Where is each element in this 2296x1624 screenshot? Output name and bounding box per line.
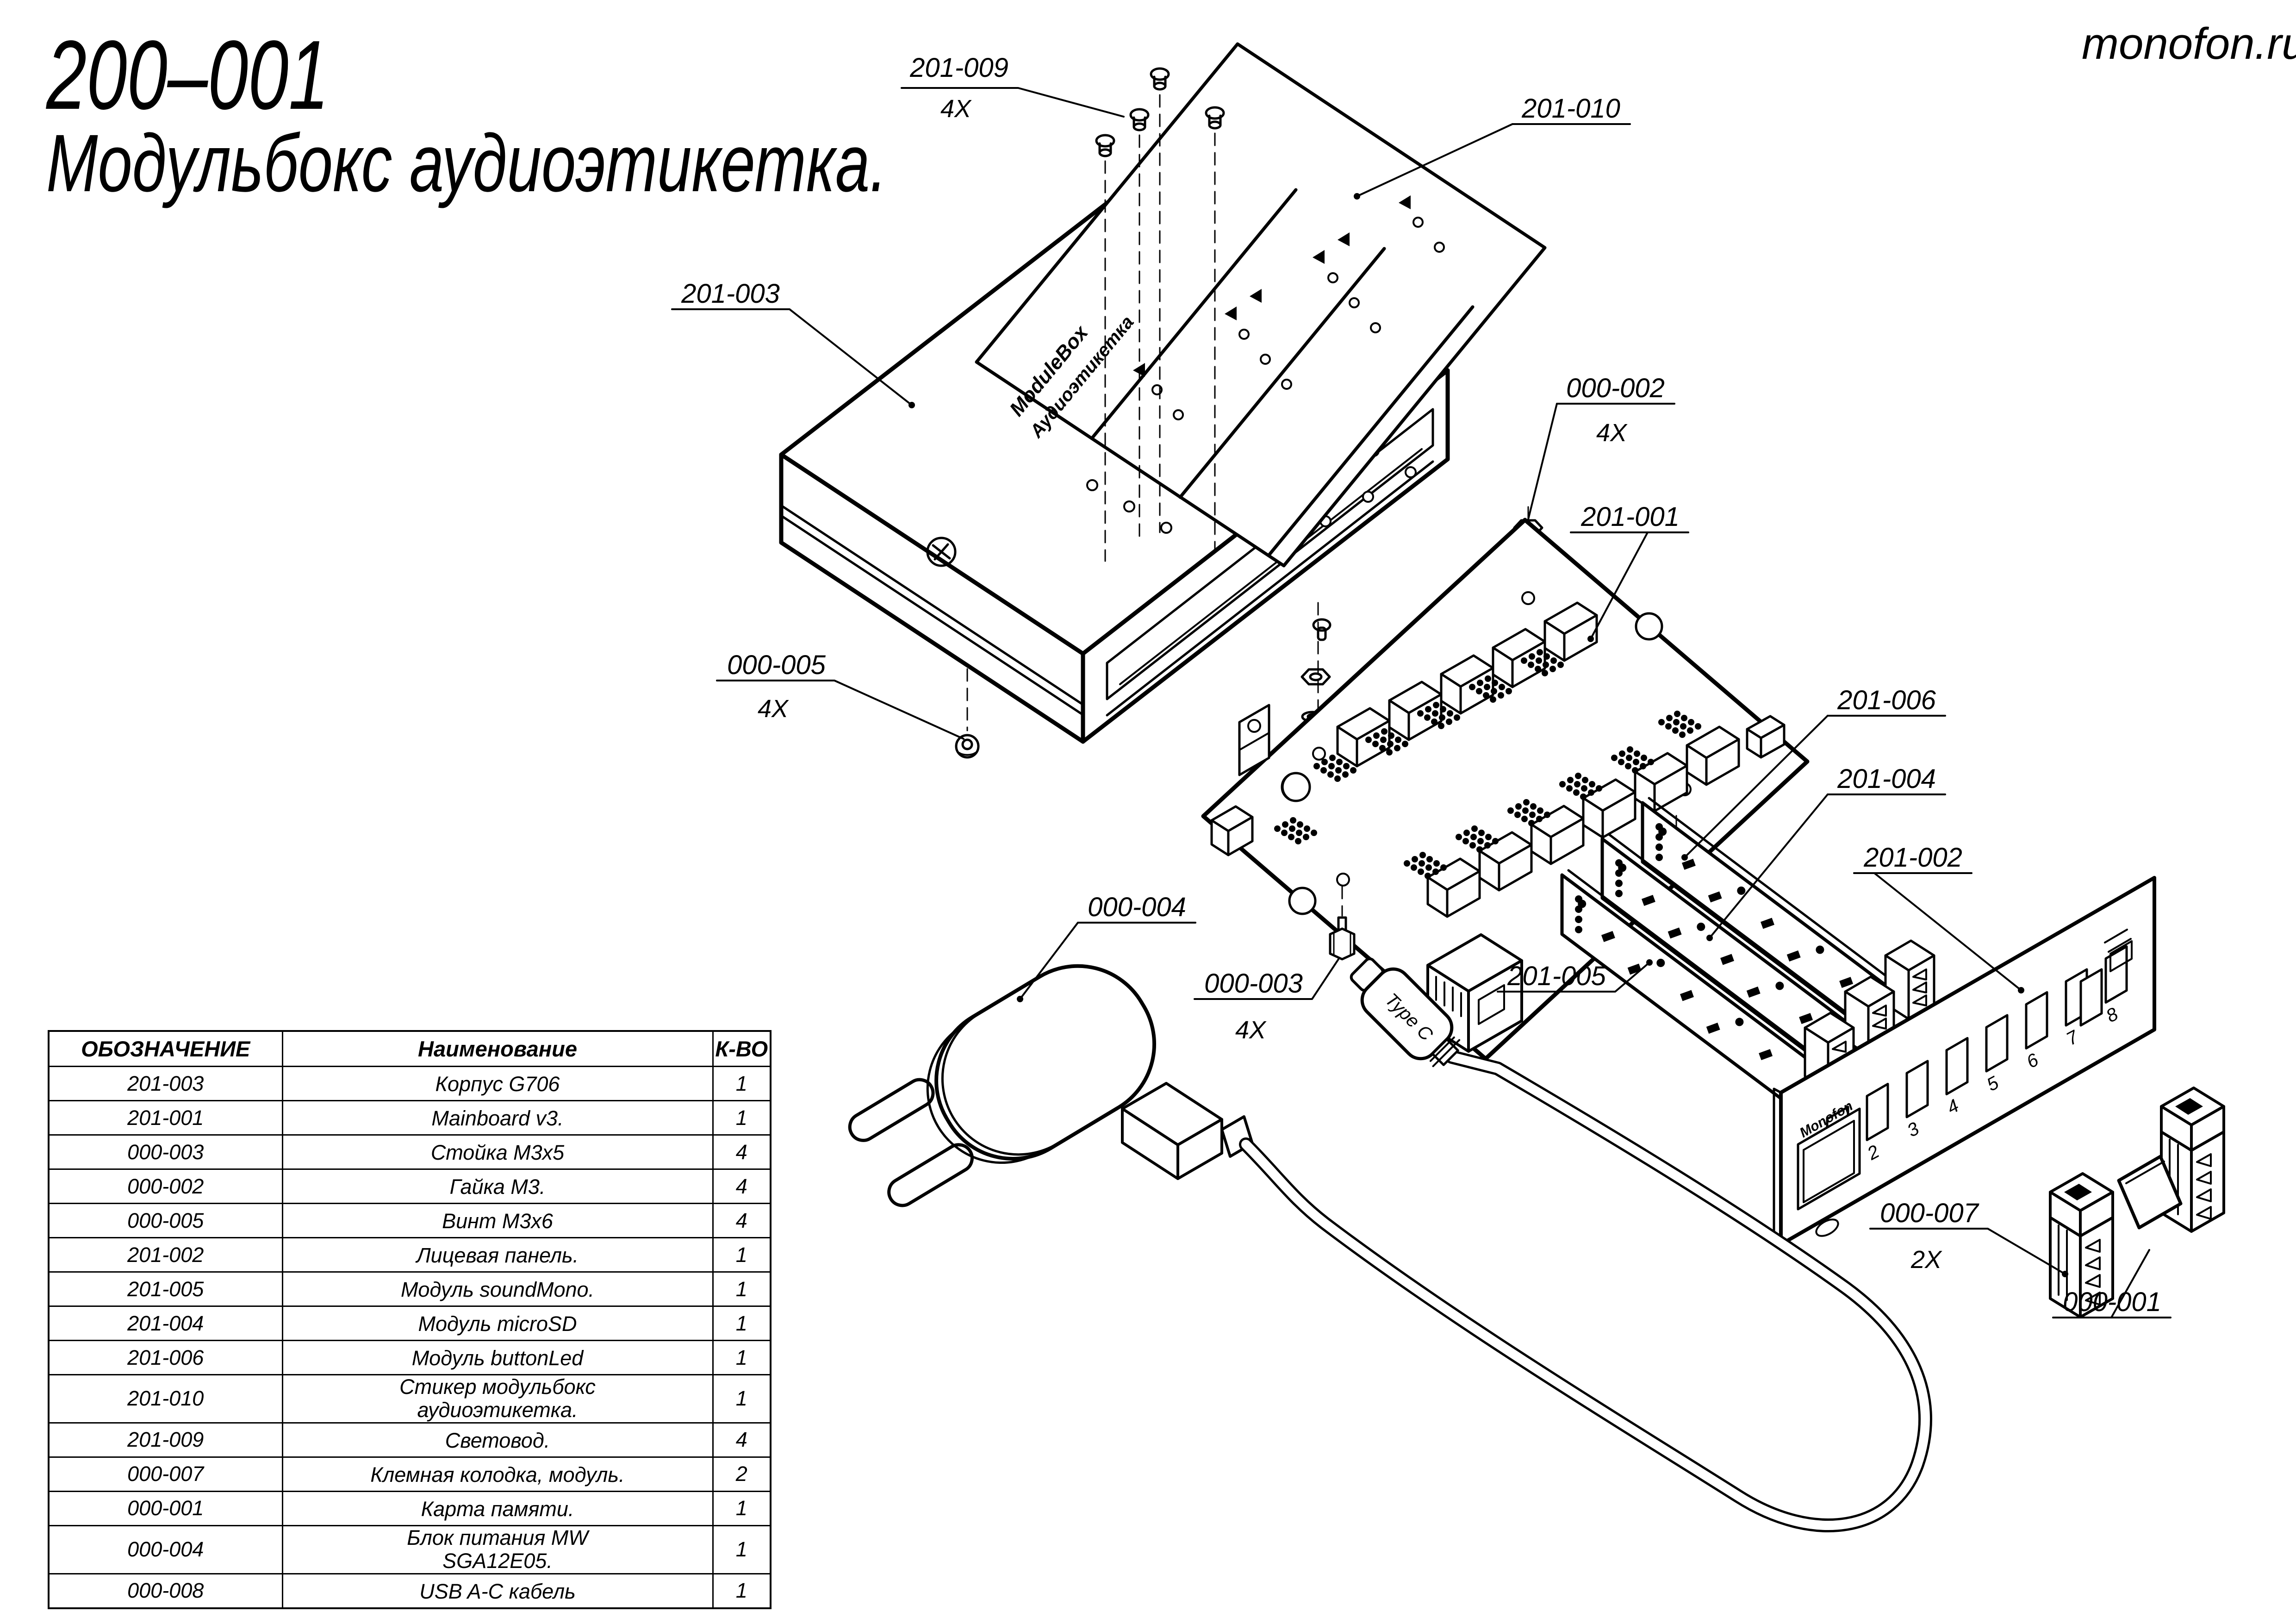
- bom-row: 201-009Световод.4: [49, 1423, 771, 1457]
- callout-000-004: 000-004: [1076, 894, 1198, 921]
- callout-000-003-qty: 4X: [1213, 1018, 1288, 1043]
- callout-000-007-qty: 2X: [1889, 1247, 1963, 1272]
- callout-201-001: 201-001: [1569, 504, 1692, 531]
- bom-row: 201-004Модуль microSD1: [49, 1306, 771, 1341]
- bom-cell-qty: 4: [713, 1135, 771, 1169]
- bom-cell-name: Корпус G706: [282, 1067, 713, 1101]
- bom-cell-designation: 201-001: [49, 1101, 282, 1135]
- callout-000-002: 000-002: [1554, 375, 1677, 402]
- bom-cell-qty: 1: [713, 1306, 771, 1341]
- bom-cell-qty: 4: [713, 1169, 771, 1204]
- bom-cell-qty: 1: [713, 1238, 771, 1272]
- bill-of-materials: ОБОЗНАЧЕНИЕ Наименование К-ВО 201-003Кор…: [48, 1030, 772, 1609]
- bom-cell-name: Гайка М3.: [282, 1169, 713, 1204]
- callout-000-007: 000-007: [1868, 1200, 1991, 1227]
- bom-cell-designation: 201-005: [49, 1272, 282, 1306]
- bom-cell-name: Модуль soundMono.: [282, 1272, 713, 1306]
- bom-cell-designation: 201-003: [49, 1067, 282, 1101]
- light-pipe: [1151, 69, 1169, 89]
- bom-cell-name: Лицевая панель.: [282, 1238, 713, 1272]
- power-adapter: [832, 938, 1182, 1232]
- callout-000-003: 000-003: [1192, 970, 1315, 997]
- bom-row: 000-005Винт М3х64: [49, 1204, 771, 1238]
- drawing-title: Модульбокс аудиоэтикетка.: [46, 117, 887, 210]
- callout-000-005-qty: 4X: [736, 696, 810, 721]
- bom-cell-designation: 000-005: [49, 1204, 282, 1238]
- callout-201-010: 201-010: [1510, 95, 1632, 122]
- light-pipe: [1096, 135, 1114, 156]
- bom-cell-qty: 1: [713, 1272, 771, 1306]
- bom-row: 201-002Лицевая панель.1: [49, 1238, 771, 1272]
- bom-cell-designation: 000-008: [49, 1574, 282, 1608]
- bom-cell-name: Карта памяти.: [282, 1491, 713, 1525]
- bom-cell-qty: 4: [713, 1423, 771, 1457]
- bom-cell-name: USB A-C кабель: [282, 1574, 713, 1608]
- drawing-number: 200–001: [46, 19, 329, 131]
- bom-cell-designation: 000-002: [49, 1169, 282, 1204]
- callout-201-002: 201-002: [1852, 844, 1974, 871]
- bom-cell-qty: 1: [713, 1525, 771, 1574]
- bom-row: 000-003Стойка М3х54: [49, 1135, 771, 1169]
- callout-000-002-qty: 4X: [1574, 420, 1649, 445]
- bom-header-name: Наименование: [282, 1031, 713, 1067]
- bom-header-qty: К-ВО: [713, 1031, 771, 1067]
- callout-000-001: 000-001: [2051, 1289, 2173, 1316]
- bom-cell-name: Световод.: [282, 1423, 713, 1457]
- bom-cell-name: Стойка М3х5: [282, 1135, 713, 1169]
- bom-row: 000-004Блок питания MW SGA12E05.1: [49, 1525, 771, 1574]
- bom-header-row: ОБОЗНАЧЕНИЕ Наименование К-ВО: [49, 1031, 771, 1067]
- bom-cell-qty: 1: [713, 1101, 771, 1135]
- callout-201-006: 201-006: [1825, 687, 1948, 714]
- bom-cell-qty: 1: [713, 1574, 771, 1608]
- callout-201-009: 201-009: [898, 55, 1020, 81]
- usb-a-plug: [1122, 1083, 1252, 1179]
- bom-cell-name: Mainboard v3.: [282, 1101, 713, 1135]
- bom-cell-name: Блок питания MW SGA12E05.: [282, 1525, 713, 1574]
- bom-row: 000-008USB A-C кабель1: [49, 1574, 771, 1608]
- bom-cell-designation: 000-007: [49, 1457, 282, 1491]
- bom-row: 201-006Модуль buttonLed1: [49, 1341, 771, 1375]
- bom-row: 000-007Клемная колодка, модуль.2: [49, 1457, 771, 1491]
- nut-m3: [1302, 669, 1330, 684]
- bom-header-designation: ОБОЗНАЧЕНИЕ: [49, 1031, 282, 1067]
- callout-000-005: 000-005: [715, 652, 838, 679]
- callout-201-004: 201-004: [1825, 766, 1948, 793]
- screw-m3x6: [1313, 619, 1330, 640]
- callout-201-003: 201-003: [669, 281, 792, 307]
- bom-cell-qty: 2: [713, 1457, 771, 1491]
- bom-cell-qty: 4: [713, 1204, 771, 1238]
- bom-cell-name: Стикер модульбокс аудиоэтикетка.: [282, 1375, 713, 1423]
- bom-cell-designation: 000-004: [49, 1525, 282, 1574]
- bom-row: 201-005Модуль soundMono.1: [49, 1272, 771, 1306]
- bom-cell-designation: 000-003: [49, 1135, 282, 1169]
- callout-201-009-qty: 4X: [919, 96, 993, 121]
- bom-row: 201-010Стикер модульбокс аудиоэтикетка.1: [49, 1375, 771, 1423]
- bom-cell-designation: 201-009: [49, 1423, 282, 1457]
- bom-cell-designation: 000-001: [49, 1491, 282, 1525]
- bom-cell-designation: 201-002: [49, 1238, 282, 1272]
- bom-row: 201-001Mainboard v3.1: [49, 1101, 771, 1135]
- bom-row: 000-001Карта памяти.1: [49, 1491, 771, 1525]
- callout-201-005: 201-005: [1495, 963, 1618, 990]
- bom-cell-qty: 1: [713, 1491, 771, 1525]
- bom-cell-qty: 1: [713, 1341, 771, 1375]
- drawing-sheet: { "colors": { "ink": "#000000", "paper":…: [0, 0, 2296, 1624]
- bom-cell-designation: 201-004: [49, 1306, 282, 1341]
- bom-cell-name: Модуль buttonLed: [282, 1341, 713, 1375]
- bom-cell-name: Винт М3х6: [282, 1204, 713, 1238]
- bom-cell-designation: 201-010: [49, 1375, 282, 1423]
- bom-cell-designation: 201-006: [49, 1341, 282, 1375]
- bom-cell-qty: 1: [713, 1067, 771, 1101]
- bom-cell-qty: 1: [713, 1375, 771, 1423]
- bom-row: 000-002Гайка М3.4: [49, 1169, 771, 1204]
- screw-m3x6: [956, 735, 978, 757]
- bom-cell-name: Клемная колодка, модуль.: [282, 1457, 713, 1491]
- watermark-logo: monofon.ru: [2082, 19, 2296, 69]
- bom-row: 201-003Корпус G7061: [49, 1067, 771, 1101]
- light-pipe: [1131, 109, 1148, 130]
- bom-cell-name: Модуль microSD: [282, 1306, 713, 1341]
